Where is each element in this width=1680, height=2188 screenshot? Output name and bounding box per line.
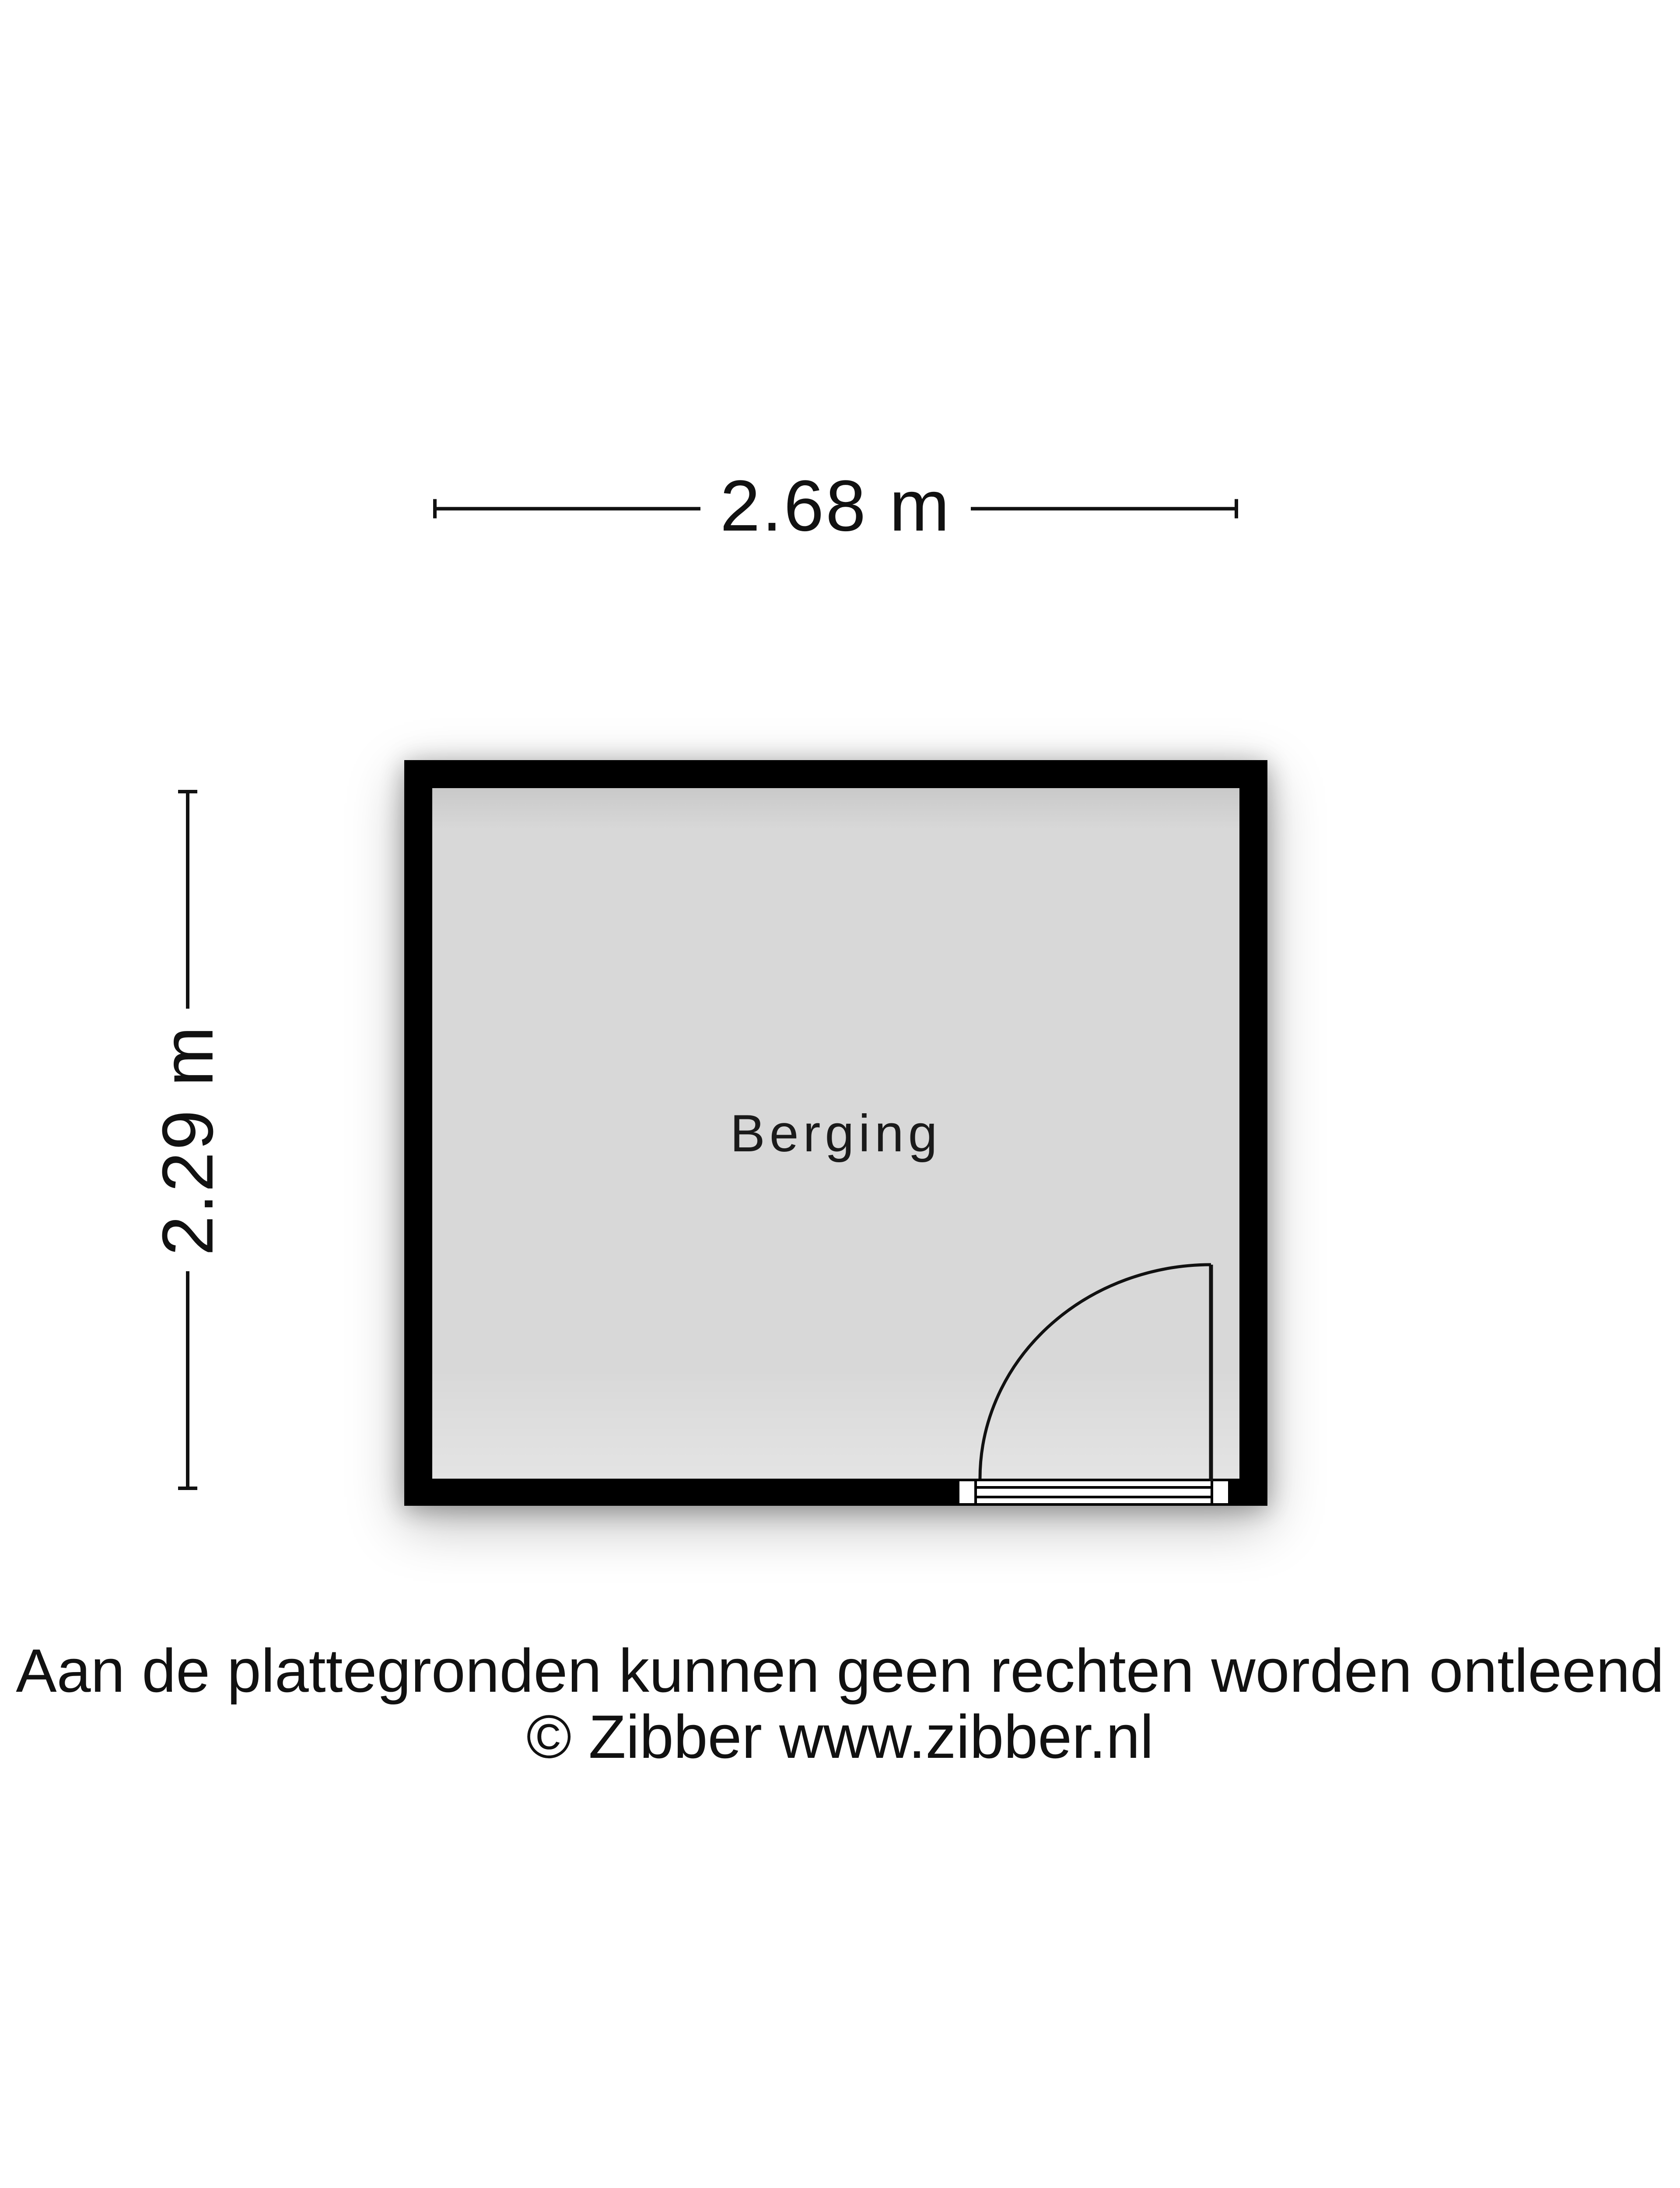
dimension-line-top-segment: [186, 793, 189, 1009]
copyright-text: © Zibber www.zibber.nl: [0, 1704, 1680, 1770]
dimension-line-bottom-segment: [186, 1271, 189, 1487]
width-dimension-label: 2.68 m: [700, 470, 971, 542]
disclaimer-text: Aan de plattegronden kunnen geen rechten…: [0, 1637, 1680, 1704]
dimension-line-left-segment: [437, 507, 700, 510]
dimension-tick-top: [178, 790, 197, 793]
footer: Aan de plattegronden kunnen geen rechten…: [0, 1637, 1680, 1770]
room-label: Berging: [730, 1107, 942, 1160]
dimension-tick-bottom: [178, 1487, 197, 1490]
door-swing-arc: [980, 1265, 1211, 1479]
door-swing-icon: [954, 1247, 1216, 1486]
height-dimension-labelbox: 2.29 m: [140, 1009, 236, 1271]
dimension-tick-left: [433, 499, 437, 518]
width-dimension: 2.68 m: [433, 473, 1238, 545]
height-dimension: 2.29 m: [140, 790, 236, 1490]
height-dimension-label: 2.29 m: [152, 1024, 224, 1255]
dimension-tick-right: [1235, 499, 1238, 518]
floorplan-page: 2.68 m 2.29 m Berging Aan de plattegrond…: [0, 0, 1680, 2188]
dimension-line-right-segment: [971, 507, 1235, 510]
